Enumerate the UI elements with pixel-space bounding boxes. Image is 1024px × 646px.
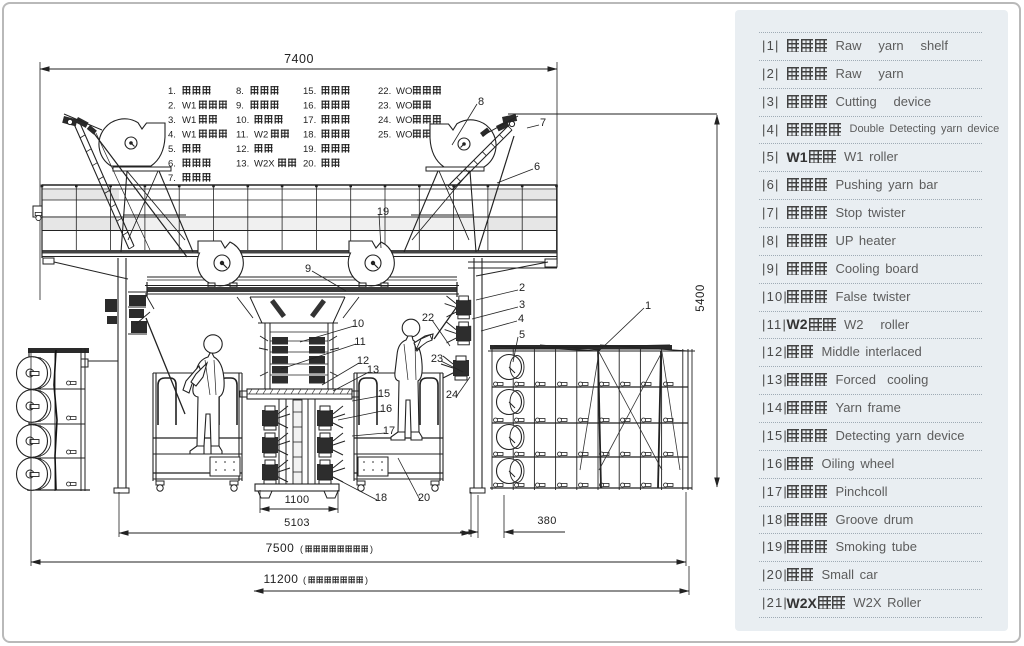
svg-text:7.: 7. <box>168 173 176 184</box>
svg-text:): ) <box>365 575 368 585</box>
svg-text:11.: 11. <box>236 130 249 141</box>
svg-text:): ) <box>370 544 373 554</box>
svg-text:8.: 8. <box>236 86 244 97</box>
svg-text:5.: 5. <box>168 144 176 155</box>
svg-text:1100: 1100 <box>285 494 310 506</box>
svg-text:19.: 19. <box>303 144 316 155</box>
svg-text:3: 3 <box>519 299 525 311</box>
svg-text:5: 5 <box>519 329 525 341</box>
svg-text:7400: 7400 <box>284 52 314 66</box>
svg-text:25.: 25. <box>378 130 391 141</box>
svg-text:8: 8 <box>478 96 484 108</box>
svg-text:10: 10 <box>352 318 364 330</box>
svg-text:22: 22 <box>422 312 434 324</box>
svg-text:1: 1 <box>645 300 651 312</box>
svg-text:9.: 9. <box>236 101 244 112</box>
svg-text:3.: 3. <box>168 115 176 126</box>
svg-text:WO: WO <box>396 86 412 97</box>
svg-text:10.: 10. <box>236 115 249 126</box>
svg-text:380: 380 <box>537 515 556 527</box>
svg-text:7: 7 <box>540 117 546 129</box>
svg-text:11: 11 <box>354 336 365 348</box>
svg-text:W1: W1 <box>182 101 196 112</box>
svg-text:18.: 18. <box>303 130 316 141</box>
svg-text:1.: 1. <box>168 86 176 97</box>
svg-text:5400: 5400 <box>695 284 707 312</box>
svg-text:19: 19 <box>377 206 389 218</box>
svg-text:18: 18 <box>375 492 387 504</box>
svg-text:9: 9 <box>305 263 311 275</box>
svg-text:7500: 7500 <box>266 541 295 555</box>
svg-text:2: 2 <box>519 282 525 294</box>
svg-text:20.: 20. <box>303 159 316 170</box>
svg-text:12.: 12. <box>236 144 249 155</box>
svg-text:W2X: W2X <box>254 159 275 170</box>
svg-text:WO: WO <box>396 101 412 112</box>
svg-text:13: 13 <box>367 364 379 376</box>
svg-text:24.: 24. <box>378 115 391 126</box>
svg-text:WO: WO <box>396 130 412 141</box>
svg-text:23.: 23. <box>378 101 391 112</box>
svg-text:22.: 22. <box>378 86 391 97</box>
svg-text:17.: 17. <box>303 115 316 126</box>
svg-text:20: 20 <box>418 492 430 504</box>
svg-text:W1: W1 <box>182 115 196 126</box>
svg-text:W2: W2 <box>254 130 268 141</box>
svg-text:4.: 4. <box>168 130 176 141</box>
svg-text:15: 15 <box>378 388 390 400</box>
svg-text:23: 23 <box>431 353 443 365</box>
svg-text:13.: 13. <box>236 159 249 170</box>
svg-text:(: ( <box>303 575 306 585</box>
svg-text:15.: 15. <box>303 86 316 97</box>
svg-text:6: 6 <box>534 161 540 173</box>
svg-text:11200: 11200 <box>264 572 299 586</box>
svg-text:24: 24 <box>446 389 458 401</box>
svg-text:17: 17 <box>383 425 395 437</box>
svg-text:16.: 16. <box>303 101 316 112</box>
svg-text:WO: WO <box>396 115 412 126</box>
svg-text:W1: W1 <box>182 130 196 141</box>
svg-text:4: 4 <box>518 313 524 325</box>
svg-text:2.: 2. <box>168 101 176 112</box>
svg-text:(: ( <box>300 544 303 554</box>
svg-text:5103: 5103 <box>284 517 310 529</box>
svg-text:16: 16 <box>380 403 392 415</box>
